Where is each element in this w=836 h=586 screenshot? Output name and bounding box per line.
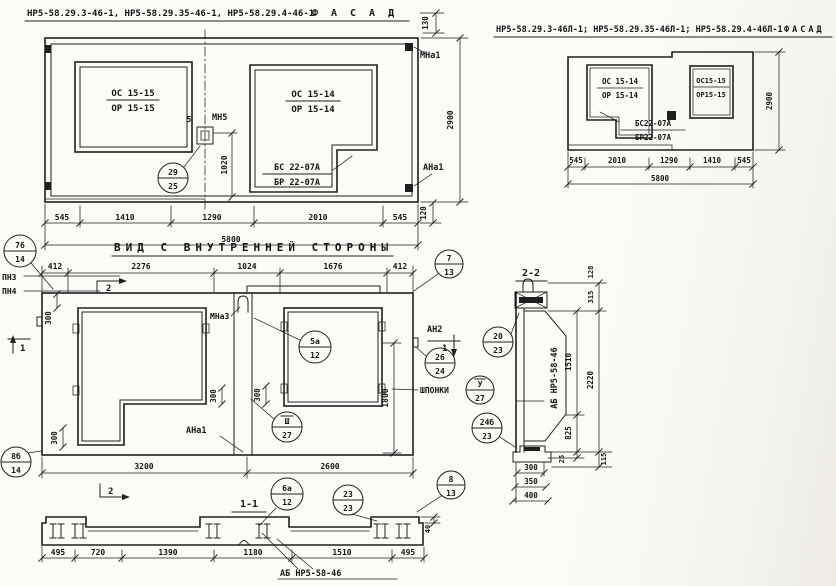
marker-bubble-26-24: 26 24 bbox=[417, 348, 455, 378]
svg-text:23: 23 bbox=[482, 432, 492, 441]
dim-label: 350 bbox=[524, 477, 538, 486]
marker-bubble-29-25: 29 25 bbox=[158, 146, 200, 193]
marker-bubble-8-13: 8 13 bbox=[417, 471, 465, 512]
svg-text:5а: 5а bbox=[310, 337, 320, 346]
section-2-2-view: 2-2 АБ НР5-58-46 1510 825 bbox=[483, 266, 612, 505]
svg-text:2: 2 bbox=[108, 487, 113, 497]
sill-mark: БС22-07А bbox=[635, 119, 672, 128]
dim-label: 412 bbox=[48, 262, 63, 271]
dim-label: 120 bbox=[419, 206, 428, 220]
dim-label: 1290 bbox=[660, 156, 679, 165]
svg-text:20: 20 bbox=[493, 332, 503, 341]
svg-text:26: 26 bbox=[435, 353, 445, 362]
dim-label: 495 bbox=[401, 548, 416, 557]
dim-label: 2010 bbox=[308, 213, 327, 222]
facade-right-window-right: ОС15-15 ОР15-15 bbox=[690, 66, 733, 118]
marker-bubble-20-23: 20 23 bbox=[483, 313, 519, 357]
svg-text:24: 24 bbox=[435, 367, 445, 376]
svg-text:23: 23 bbox=[343, 504, 353, 513]
dim-label: 40 bbox=[424, 525, 432, 533]
marker-bubble-5a-12: 5а 12 bbox=[254, 318, 331, 363]
anchor-label-mna1: МНа1 bbox=[420, 51, 440, 61]
svg-text:23: 23 bbox=[343, 490, 353, 499]
section-1-1-view: 1-1 495 720 1390 1180 bbox=[39, 499, 440, 579]
section-2-2-title: 2-2 bbox=[522, 268, 540, 279]
dim-label: 1024 bbox=[237, 262, 256, 271]
dim-label: 1290 bbox=[202, 213, 221, 222]
facade-left-view: НР5-58.29.3-46-1, НР5-58.29.35-46-1, НР5… bbox=[25, 8, 468, 250]
anchor-mark-mna1 bbox=[405, 43, 413, 51]
dim-label: 720 bbox=[91, 548, 106, 557]
dim-label: 1020 bbox=[220, 155, 229, 174]
window-mark: ОС15-15 bbox=[696, 77, 726, 85]
dim-label: 2600 bbox=[320, 462, 339, 471]
dim-label: 2010 bbox=[608, 156, 627, 165]
marker-bubble-6a-12: 6а 12 bbox=[259, 478, 303, 526]
sill-mark: БР 22-07А bbox=[274, 178, 320, 188]
interior-middle-pier bbox=[234, 293, 252, 455]
dim-label: 315 bbox=[587, 291, 595, 304]
dim-label: 545 bbox=[393, 213, 408, 222]
dim-label: 825 bbox=[564, 426, 573, 440]
interior-title: ВИД С ВНУТРЕННЕЙ СТОРОНЫ bbox=[114, 241, 393, 254]
svg-text:12: 12 bbox=[282, 498, 292, 507]
section-1-1-title: 1-1 bbox=[240, 499, 258, 510]
dim-label: 545 bbox=[737, 156, 751, 165]
window-mark: ОС 15-14 bbox=[291, 90, 335, 100]
marker-bubble-8b-14: 8б 14 bbox=[1, 447, 41, 477]
dim-label: 2900 bbox=[765, 91, 774, 110]
svg-text:12: 12 bbox=[310, 351, 320, 360]
svg-text:27: 27 bbox=[282, 431, 292, 440]
dim-label: 1800 bbox=[381, 388, 390, 407]
blueprint-canvas: НР5-58.29.3-46-1, НР5-58.29.35-46-1, НР5… bbox=[0, 0, 836, 586]
dim-label: 300 bbox=[50, 431, 59, 445]
svg-text:25: 25 bbox=[168, 182, 178, 191]
sill-mark: БР22-07А bbox=[635, 133, 672, 142]
dim-label: 5800 bbox=[651, 174, 670, 183]
dim-label: 1510 bbox=[332, 548, 351, 557]
section-mark-1-left: 1 bbox=[8, 335, 30, 354]
facade-left-window-left: ОС 15-15 ОР 15-15 bbox=[75, 62, 192, 152]
svg-text:23: 23 bbox=[493, 346, 503, 355]
dim-label: 1510 bbox=[564, 352, 573, 371]
dim-label: 128 bbox=[587, 266, 595, 279]
dim-label: 545 bbox=[569, 156, 583, 165]
svg-text:7: 7 bbox=[447, 254, 452, 263]
dim-label: 300 bbox=[209, 389, 218, 403]
dim-label: 300 bbox=[44, 311, 53, 325]
dim-label: 412 bbox=[393, 262, 408, 271]
marker-bubble-24b-23: 24б 23 bbox=[472, 413, 515, 447]
svg-text:У: У bbox=[478, 380, 483, 389]
svg-text:8: 8 bbox=[449, 475, 454, 484]
interior-top-dimensions: 412 2276 1024 1676 412 bbox=[39, 262, 416, 292]
facade-left-title: НР5-58.29.3-46-1, НР5-58.29.35-46-1, НР5… bbox=[27, 9, 314, 19]
window-mark: ОР 15-14 bbox=[602, 91, 639, 100]
marker-bubble-7-13: 7 13 bbox=[414, 250, 463, 291]
facade-right-view-label: ФАСАД bbox=[784, 25, 825, 35]
element-label-ab: АБ НР5-58-46 bbox=[280, 569, 341, 579]
dim-label: 300 bbox=[524, 463, 538, 472]
anchor-label-ana1: АНа1 bbox=[186, 426, 206, 436]
dim-label: 2220 bbox=[586, 370, 595, 389]
interior-bottom-dimensions: 3200 2600 bbox=[39, 457, 416, 478]
facade-left-window-right: ОС 15-14 ОР 15-14 БС 22-07А БР 22-07А bbox=[250, 65, 377, 192]
dim-label: 2276 bbox=[131, 262, 150, 271]
section-2-2-profile: АБ НР5-58-46 bbox=[513, 279, 566, 462]
svg-text:1: 1 bbox=[20, 344, 25, 354]
window-mark: ОС 15-14 bbox=[602, 77, 639, 86]
dim-label: 300 bbox=[253, 388, 262, 402]
dim-label: 25 bbox=[558, 455, 566, 463]
section-1-1-profile bbox=[42, 517, 423, 545]
anchor-label-ana1: АНа1 bbox=[423, 163, 443, 173]
embed-label-mna3: МНа3 bbox=[210, 312, 229, 321]
embed-mark-mn5: МН5 bbox=[212, 113, 227, 123]
section-1-1-label: АБ НР5-58-46 bbox=[262, 533, 397, 579]
svg-text:76: 76 bbox=[15, 241, 25, 250]
dim-label: 1676 bbox=[323, 262, 342, 271]
dim-label: 545 bbox=[55, 213, 70, 222]
svg-text:14: 14 bbox=[15, 255, 25, 264]
dim-label: 495 bbox=[51, 548, 66, 557]
interior-1800-dim: 1800 bbox=[381, 340, 401, 456]
marker-bubble-23-23: 23 23 bbox=[333, 485, 377, 521]
dim-label: 115 bbox=[600, 453, 608, 466]
keys-label: ШПОНКИ bbox=[420, 386, 449, 395]
window-mark: ОР15-15 bbox=[696, 91, 726, 99]
dim-label: 2900 bbox=[446, 110, 455, 129]
anchor-mark-ana1 bbox=[405, 184, 413, 192]
dim-label: 1410 bbox=[703, 156, 722, 165]
window-mark: ОР 15-15 bbox=[111, 104, 154, 114]
dim-label: 3200 bbox=[134, 462, 153, 471]
svg-text:2: 2 bbox=[106, 284, 111, 294]
interior-window-right bbox=[281, 308, 385, 406]
facade-right-view: НР5-58.29.3-46Л-1; НР5-58.29.35-46Л-1; Н… bbox=[494, 25, 832, 188]
dim-label: 5 bbox=[187, 115, 192, 124]
layer-label-pn3: ПН3 bbox=[2, 273, 17, 282]
dim-label: 1180 bbox=[243, 548, 262, 557]
svg-text:6а: 6а bbox=[282, 484, 292, 493]
lifting-loop bbox=[238, 296, 248, 312]
sill-mark: БС 22-07А bbox=[274, 163, 320, 173]
svg-text:13: 13 bbox=[444, 268, 454, 277]
facade-right-title: НР5-58.29.3-46Л-1; НР5-58.29.35-46Л-1; Н… bbox=[496, 25, 783, 35]
section-mark-2-top: 2 bbox=[97, 278, 127, 294]
svg-text:Ш: Ш bbox=[285, 417, 290, 426]
svg-text:8б: 8б bbox=[11, 451, 21, 461]
facade-left-panel-outline bbox=[45, 30, 418, 210]
svg-text:27: 27 bbox=[475, 394, 485, 403]
interior-window-left bbox=[73, 308, 209, 445]
svg-text:14: 14 bbox=[11, 466, 21, 475]
window-mark: ОС 15-15 bbox=[111, 89, 154, 99]
dim-label: 1390 bbox=[158, 548, 177, 557]
marker-bubble-V-27: У 27 bbox=[466, 376, 494, 404]
svg-text:13: 13 bbox=[446, 489, 456, 498]
dim-label: 1410 bbox=[115, 213, 134, 222]
dim-label: 130 bbox=[421, 16, 430, 30]
svg-text:24б: 24б bbox=[480, 417, 495, 427]
facade-left-view-label: ФАСАД bbox=[312, 8, 407, 19]
element-label-ab: АБ НР5-58-46 bbox=[550, 347, 560, 408]
section-mark-2-bottom: 2 bbox=[100, 484, 130, 500]
layer-label-pn4: ПН4 bbox=[2, 287, 17, 296]
anchor-label-an2: АН2 bbox=[427, 325, 442, 335]
interior-view: ВИД С ВНУТРЕННЕЙ СТОРОНЫ 412 2276 1024 1… bbox=[1, 235, 515, 526]
window-mark: ОР 15-14 bbox=[291, 105, 335, 115]
dim-label: 400 bbox=[524, 491, 538, 500]
svg-text:29: 29 bbox=[168, 168, 178, 177]
